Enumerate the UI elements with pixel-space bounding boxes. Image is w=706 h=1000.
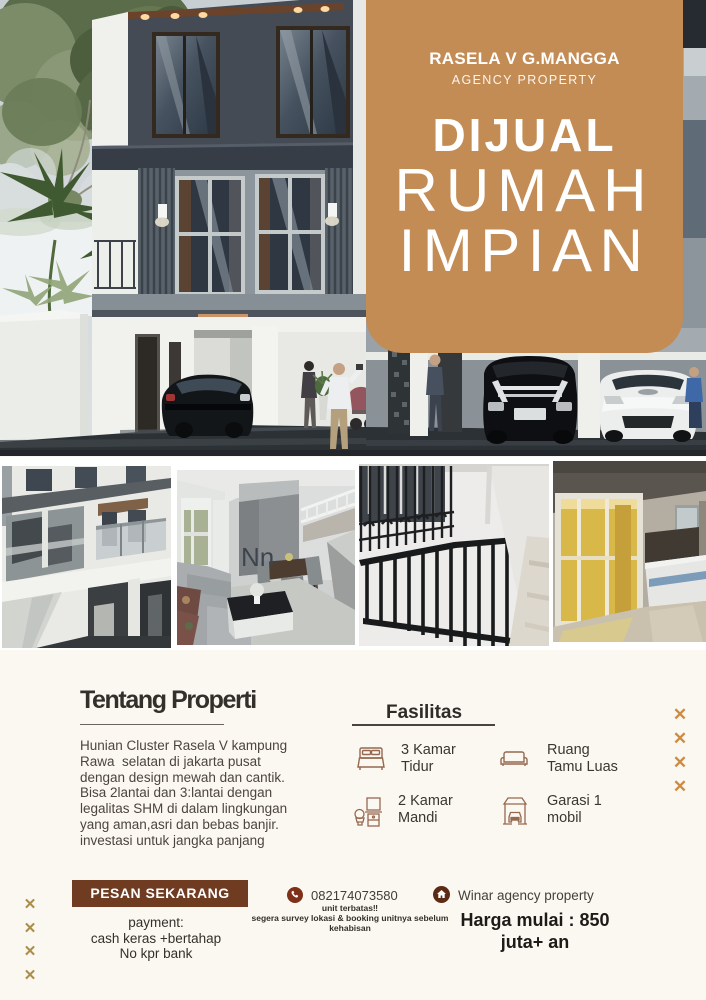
svg-text:Nn: Nn (241, 542, 274, 572)
